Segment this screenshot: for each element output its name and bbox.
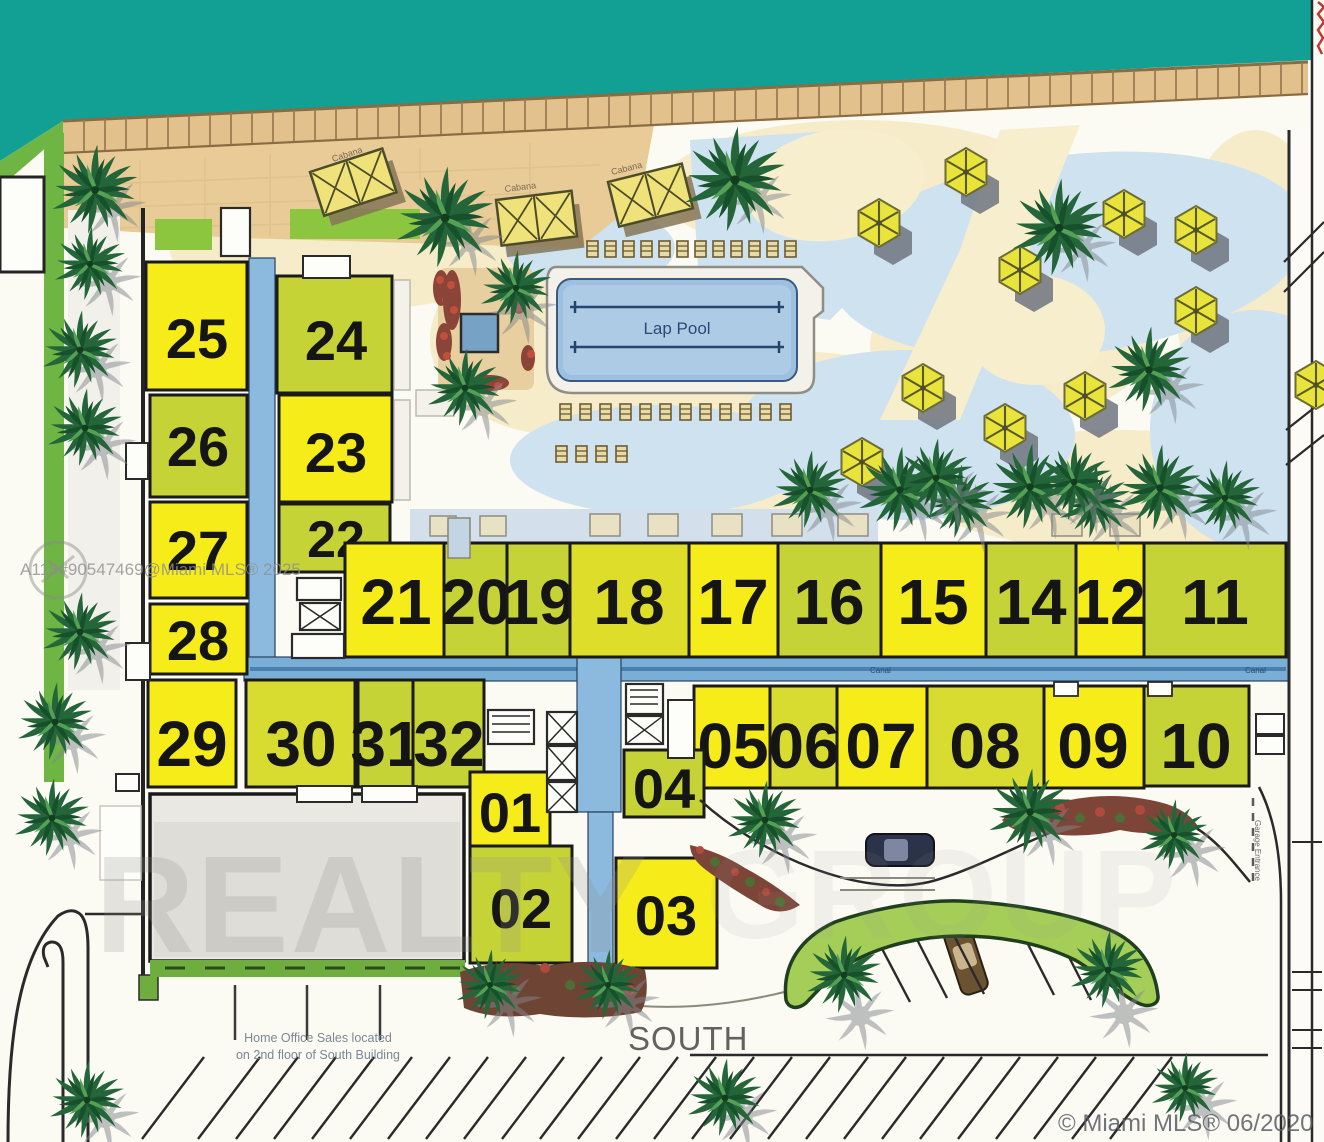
svg-text:14: 14	[995, 566, 1067, 638]
svg-text:12: 12	[1074, 566, 1145, 638]
svg-text:08: 08	[949, 710, 1020, 782]
svg-text:16: 16	[793, 566, 864, 638]
svg-text:25: 25	[166, 307, 228, 370]
svg-text:07: 07	[845, 710, 916, 782]
svg-text:11: 11	[1181, 566, 1249, 638]
svg-text:10: 10	[1160, 710, 1231, 782]
svg-text:30: 30	[265, 708, 336, 780]
svg-text:24: 24	[305, 309, 367, 372]
svg-text:19: 19	[503, 566, 574, 638]
svg-text:09: 09	[1057, 710, 1128, 782]
svg-text:32: 32	[413, 708, 484, 780]
svg-text:06: 06	[768, 710, 839, 782]
svg-text:on 2nd floor of South Building: on 2nd floor of South Building	[236, 1048, 400, 1062]
svg-text:Lap Pool: Lap Pool	[643, 319, 710, 338]
svg-text:20: 20	[440, 566, 511, 638]
svg-text:18: 18	[593, 566, 664, 638]
svg-text:15: 15	[897, 566, 968, 638]
svg-text:GROUP: GROUP	[706, 824, 1178, 965]
svg-text:26: 26	[167, 415, 229, 478]
svg-text:21: 21	[360, 566, 431, 638]
svg-text:A118#90547469@Miami MLS® 2025: A118#90547469@Miami MLS® 2025	[20, 560, 301, 579]
svg-text:05: 05	[697, 710, 768, 782]
svg-text:Home Office Sales located: Home Office Sales located	[244, 1031, 392, 1045]
svg-text:04: 04	[633, 757, 695, 820]
svg-text:31: 31	[350, 708, 421, 780]
svg-text:Garage Entrance: Garage Entrance	[1253, 820, 1262, 881]
svg-text:Canal: Canal	[870, 666, 891, 675]
svg-text:17: 17	[697, 566, 768, 638]
svg-text:Canal: Canal	[1245, 666, 1266, 675]
svg-text:SOUTH: SOUTH	[628, 1020, 749, 1057]
svg-text:© Miami MLS® 06/2020: © Miami MLS® 06/2020	[1058, 1110, 1313, 1137]
svg-text:REALTY: REALTY	[95, 828, 649, 982]
svg-text:28: 28	[167, 609, 229, 672]
svg-text:23: 23	[305, 421, 367, 484]
svg-text:29: 29	[156, 708, 227, 780]
